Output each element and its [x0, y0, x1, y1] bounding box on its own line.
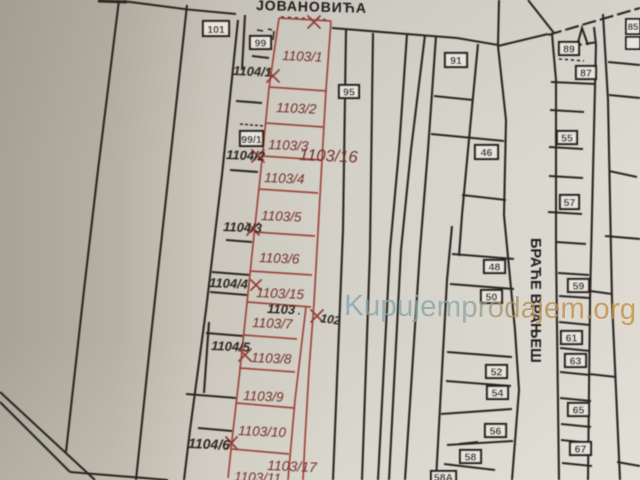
svg-text:65: 65: [573, 405, 585, 417]
svg-text:48: 48: [489, 262, 501, 274]
svg-text:1103/2: 1103/2: [276, 100, 317, 117]
svg-text:89: 89: [563, 44, 575, 56]
svg-text:1104/5: 1104/5: [211, 338, 251, 355]
svg-text:1104/2: 1104/2: [226, 147, 266, 164]
svg-text:63: 63: [570, 356, 582, 368]
svg-text:59: 59: [573, 281, 585, 293]
svg-text:67: 67: [575, 444, 587, 456]
svg-text:1103/8: 1103/8: [251, 350, 292, 367]
svg-text:95: 95: [343, 87, 355, 99]
svg-text:46: 46: [481, 147, 493, 159]
svg-text:1103/5: 1103/5: [261, 208, 302, 225]
svg-text:102: 102: [320, 311, 342, 328]
svg-text:52: 52: [491, 367, 503, 379]
svg-text:54: 54: [492, 388, 504, 400]
svg-text:Kupujemprodajem.org: Kupujemprodajem.org: [344, 289, 637, 326]
svg-text:61: 61: [566, 333, 578, 345]
svg-text:1103/10: 1103/10: [238, 423, 287, 440]
svg-text:58: 58: [465, 452, 477, 464]
svg-text:101: 101: [207, 24, 225, 36]
svg-text:1104/6: 1104/6: [188, 435, 231, 453]
svg-text:1103/4: 1103/4: [264, 170, 305, 187]
svg-text:55: 55: [561, 133, 573, 145]
svg-text:87: 87: [580, 68, 592, 80]
svg-text:1103/9: 1103/9: [243, 388, 284, 405]
svg-text:99/1: 99/1: [241, 134, 262, 146]
svg-text:1104/1: 1104/1: [233, 63, 272, 80]
svg-text:56: 56: [490, 426, 502, 438]
svg-text:1104/4: 1104/4: [209, 275, 249, 292]
svg-text:58A: 58A: [434, 472, 454, 480]
svg-text:1103/6: 1103/6: [259, 250, 300, 267]
svg-text:1103/15: 1103/15: [256, 285, 305, 302]
svg-text:1103/1: 1103/1: [282, 48, 323, 65]
svg-text:1103/7: 1103/7: [252, 315, 293, 332]
svg-text:1103/16: 1103/16: [299, 146, 359, 167]
svg-text:57: 57: [564, 197, 576, 209]
svg-text:85: 85: [628, 22, 639, 33]
svg-text:99: 99: [255, 38, 267, 50]
svg-text:1104/3: 1104/3: [223, 219, 263, 236]
svg-text:1103/11: 1103/11: [234, 469, 281, 480]
svg-text:91: 91: [450, 55, 462, 67]
